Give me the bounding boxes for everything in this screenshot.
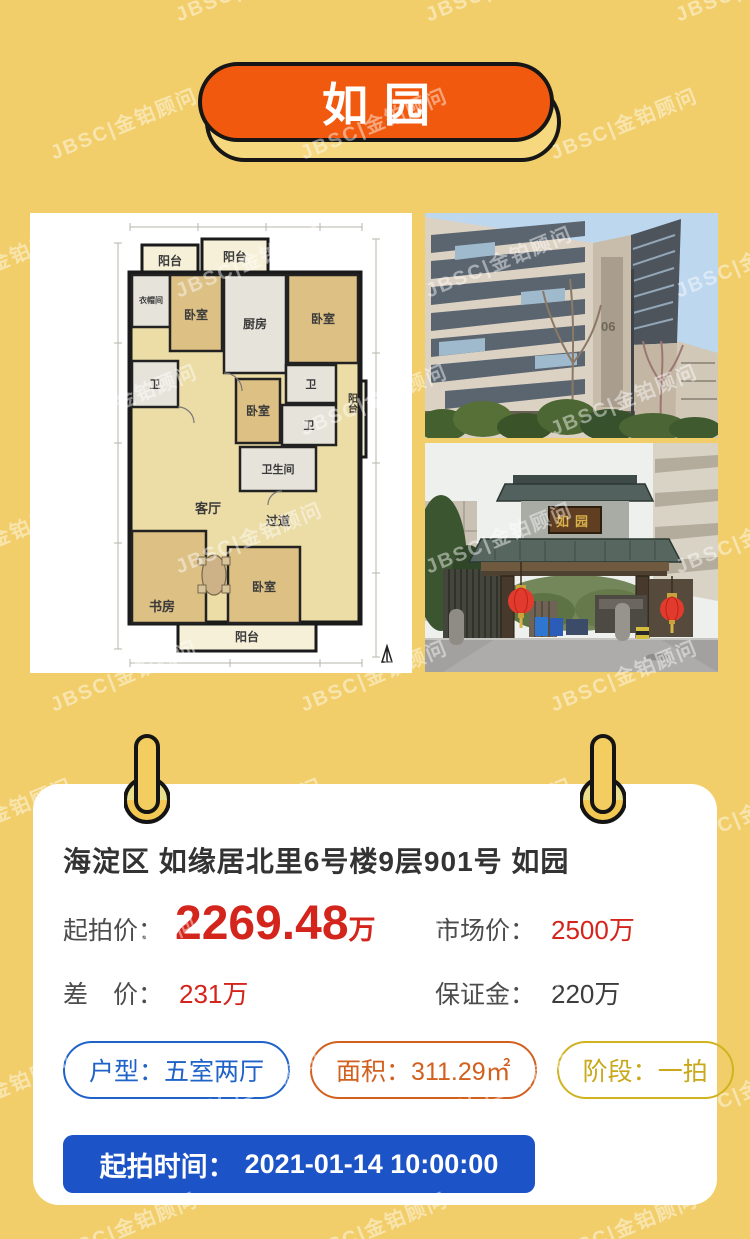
- room-label: 阳台: [235, 629, 259, 644]
- gate-plaque: 如园: [556, 514, 594, 529]
- start-time-value: 2021-01-14 10:00:00: [245, 1149, 499, 1180]
- tag-row: 户型：五室两厅 面积：311.29㎡ 阶段：一拍: [63, 1041, 687, 1099]
- room-label: 卫: [304, 419, 315, 432]
- building-number: 06: [601, 319, 615, 334]
- room-label: 阳台: [346, 393, 358, 414]
- room-label: 卫生间: [262, 462, 295, 476]
- start-time-button[interactable]: 起拍时间： 2021-01-14 10:00:00: [63, 1135, 535, 1193]
- room-label: 厨房: [243, 316, 267, 331]
- floorplan-walls: [130, 239, 366, 651]
- tag-area-label: 面积：: [336, 1058, 411, 1086]
- listing-card: 海淀区 如缘居北里6号楼9层901号 如园 起拍价： 2269.48 万 市场价…: [33, 784, 717, 1205]
- watermark-text: JBSC|金铂顾问: [170, 0, 326, 27]
- pedestrian: [449, 609, 464, 645]
- photo-gate[interactable]: 如园: [425, 443, 718, 672]
- watermark-text: JBSC|金铂顾问: [0, 0, 77, 27]
- pin-icon: [580, 734, 626, 830]
- community-name: 如园: [198, 62, 554, 142]
- room-label: 阳台: [158, 253, 182, 268]
- deposit-value: 220万: [551, 974, 620, 1011]
- hazard-stripes: [636, 627, 649, 639]
- tag-area-value: 311.29㎡: [411, 1058, 511, 1086]
- room-label: 过道: [266, 513, 290, 528]
- room-label: 卧室: [184, 307, 208, 322]
- start-price-unit: 万: [349, 908, 376, 947]
- pin-icon: [124, 734, 170, 830]
- tag-layout-value: 五室两厅: [164, 1058, 264, 1086]
- deposit-label: 保证金：: [435, 975, 535, 1011]
- pedestrian: [615, 603, 630, 641]
- tag-stage-label: 阶段：: [583, 1058, 658, 1086]
- room-label: 卧室: [252, 579, 276, 594]
- listing-title: 海淀区 如缘居北里6号楼9层901号 如园: [63, 840, 687, 880]
- room-label: 卧室: [311, 311, 335, 326]
- tag-area[interactable]: 面积：311.29㎡: [310, 1041, 537, 1099]
- price-diff-value: 231万: [179, 974, 248, 1011]
- community-badge: 如园: [198, 62, 554, 142]
- watermark-text: JBSC|金铂顾问: [670, 0, 750, 27]
- start-price-label: 起拍价：: [63, 911, 163, 947]
- room-label: 客厅: [195, 501, 221, 516]
- photo-building[interactable]: 06: [425, 213, 718, 438]
- room-label: 阳台: [223, 249, 247, 264]
- room-label: 卫: [150, 378, 161, 391]
- start-time-label: 起拍时间：: [100, 1145, 235, 1184]
- price-diff-label: 差 价：: [63, 975, 163, 1011]
- room-label: 衣帽间: [139, 295, 163, 305]
- room-label: 卫: [306, 378, 317, 391]
- floorplan-image[interactable]: 阳台 阳台 衣帽间 卧室 厨房 卧室 卫 卫 卫 阳台 卧室 卫生间 客厅 过道…: [30, 213, 412, 673]
- tag-layout[interactable]: 户型：五室两厅: [63, 1041, 290, 1099]
- recycle-bin: [550, 618, 563, 636]
- listing-poster: 如园: [0, 0, 750, 1239]
- start-price-value: 2269.48: [175, 900, 349, 948]
- room-label: 卧室: [246, 403, 270, 418]
- recycle-bin: [535, 617, 548, 636]
- watermark-text: JBSC|金铂顾问: [420, 0, 576, 27]
- market-price-label: 市场价：: [435, 911, 535, 947]
- market-price-value: 2500万: [551, 910, 635, 947]
- watermark-text: JBSC|金铂顾问: [45, 80, 201, 166]
- tag-layout-label: 户型：: [89, 1058, 164, 1086]
- room-label: 书房: [149, 599, 175, 614]
- watermark-text: JBSC|金铂顾问: [545, 80, 701, 166]
- tag-stage[interactable]: 阶段：一拍: [557, 1041, 734, 1099]
- tag-stage-value: 一拍: [658, 1058, 708, 1086]
- compass-icon: [382, 646, 392, 662]
